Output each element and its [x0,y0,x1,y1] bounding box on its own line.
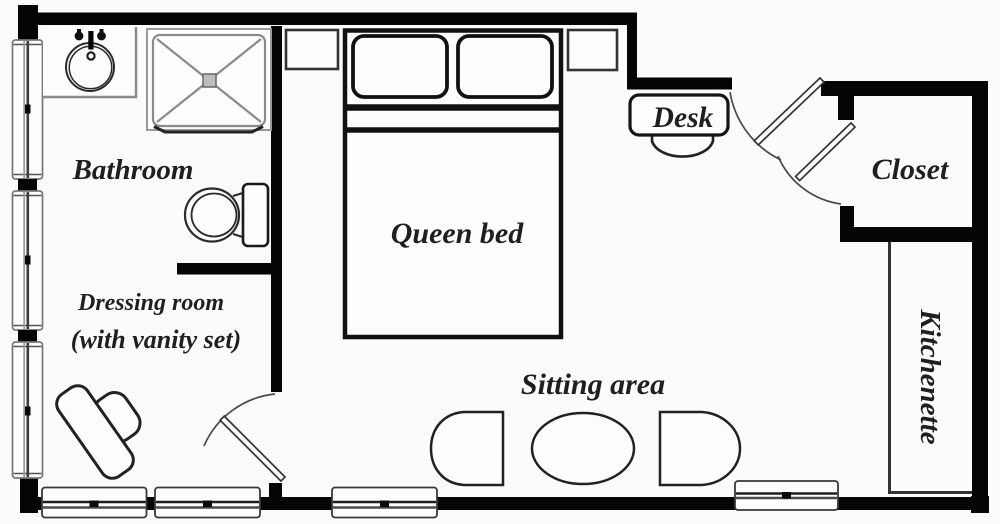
svg-text:Queen bed: Queen bed [391,217,524,250]
svg-text:Dressing room: Dressing room [77,290,224,316]
svg-text:Desk: Desk [652,102,714,134]
svg-text:(with vanity set): (with vanity set) [71,325,241,354]
svg-text:Closet: Closet [872,153,950,186]
svg-text:Kitchenette: Kitchenette [914,308,946,444]
svg-text:Bathroom: Bathroom [72,154,194,186]
svg-text:Sitting area: Sitting area [521,368,665,401]
